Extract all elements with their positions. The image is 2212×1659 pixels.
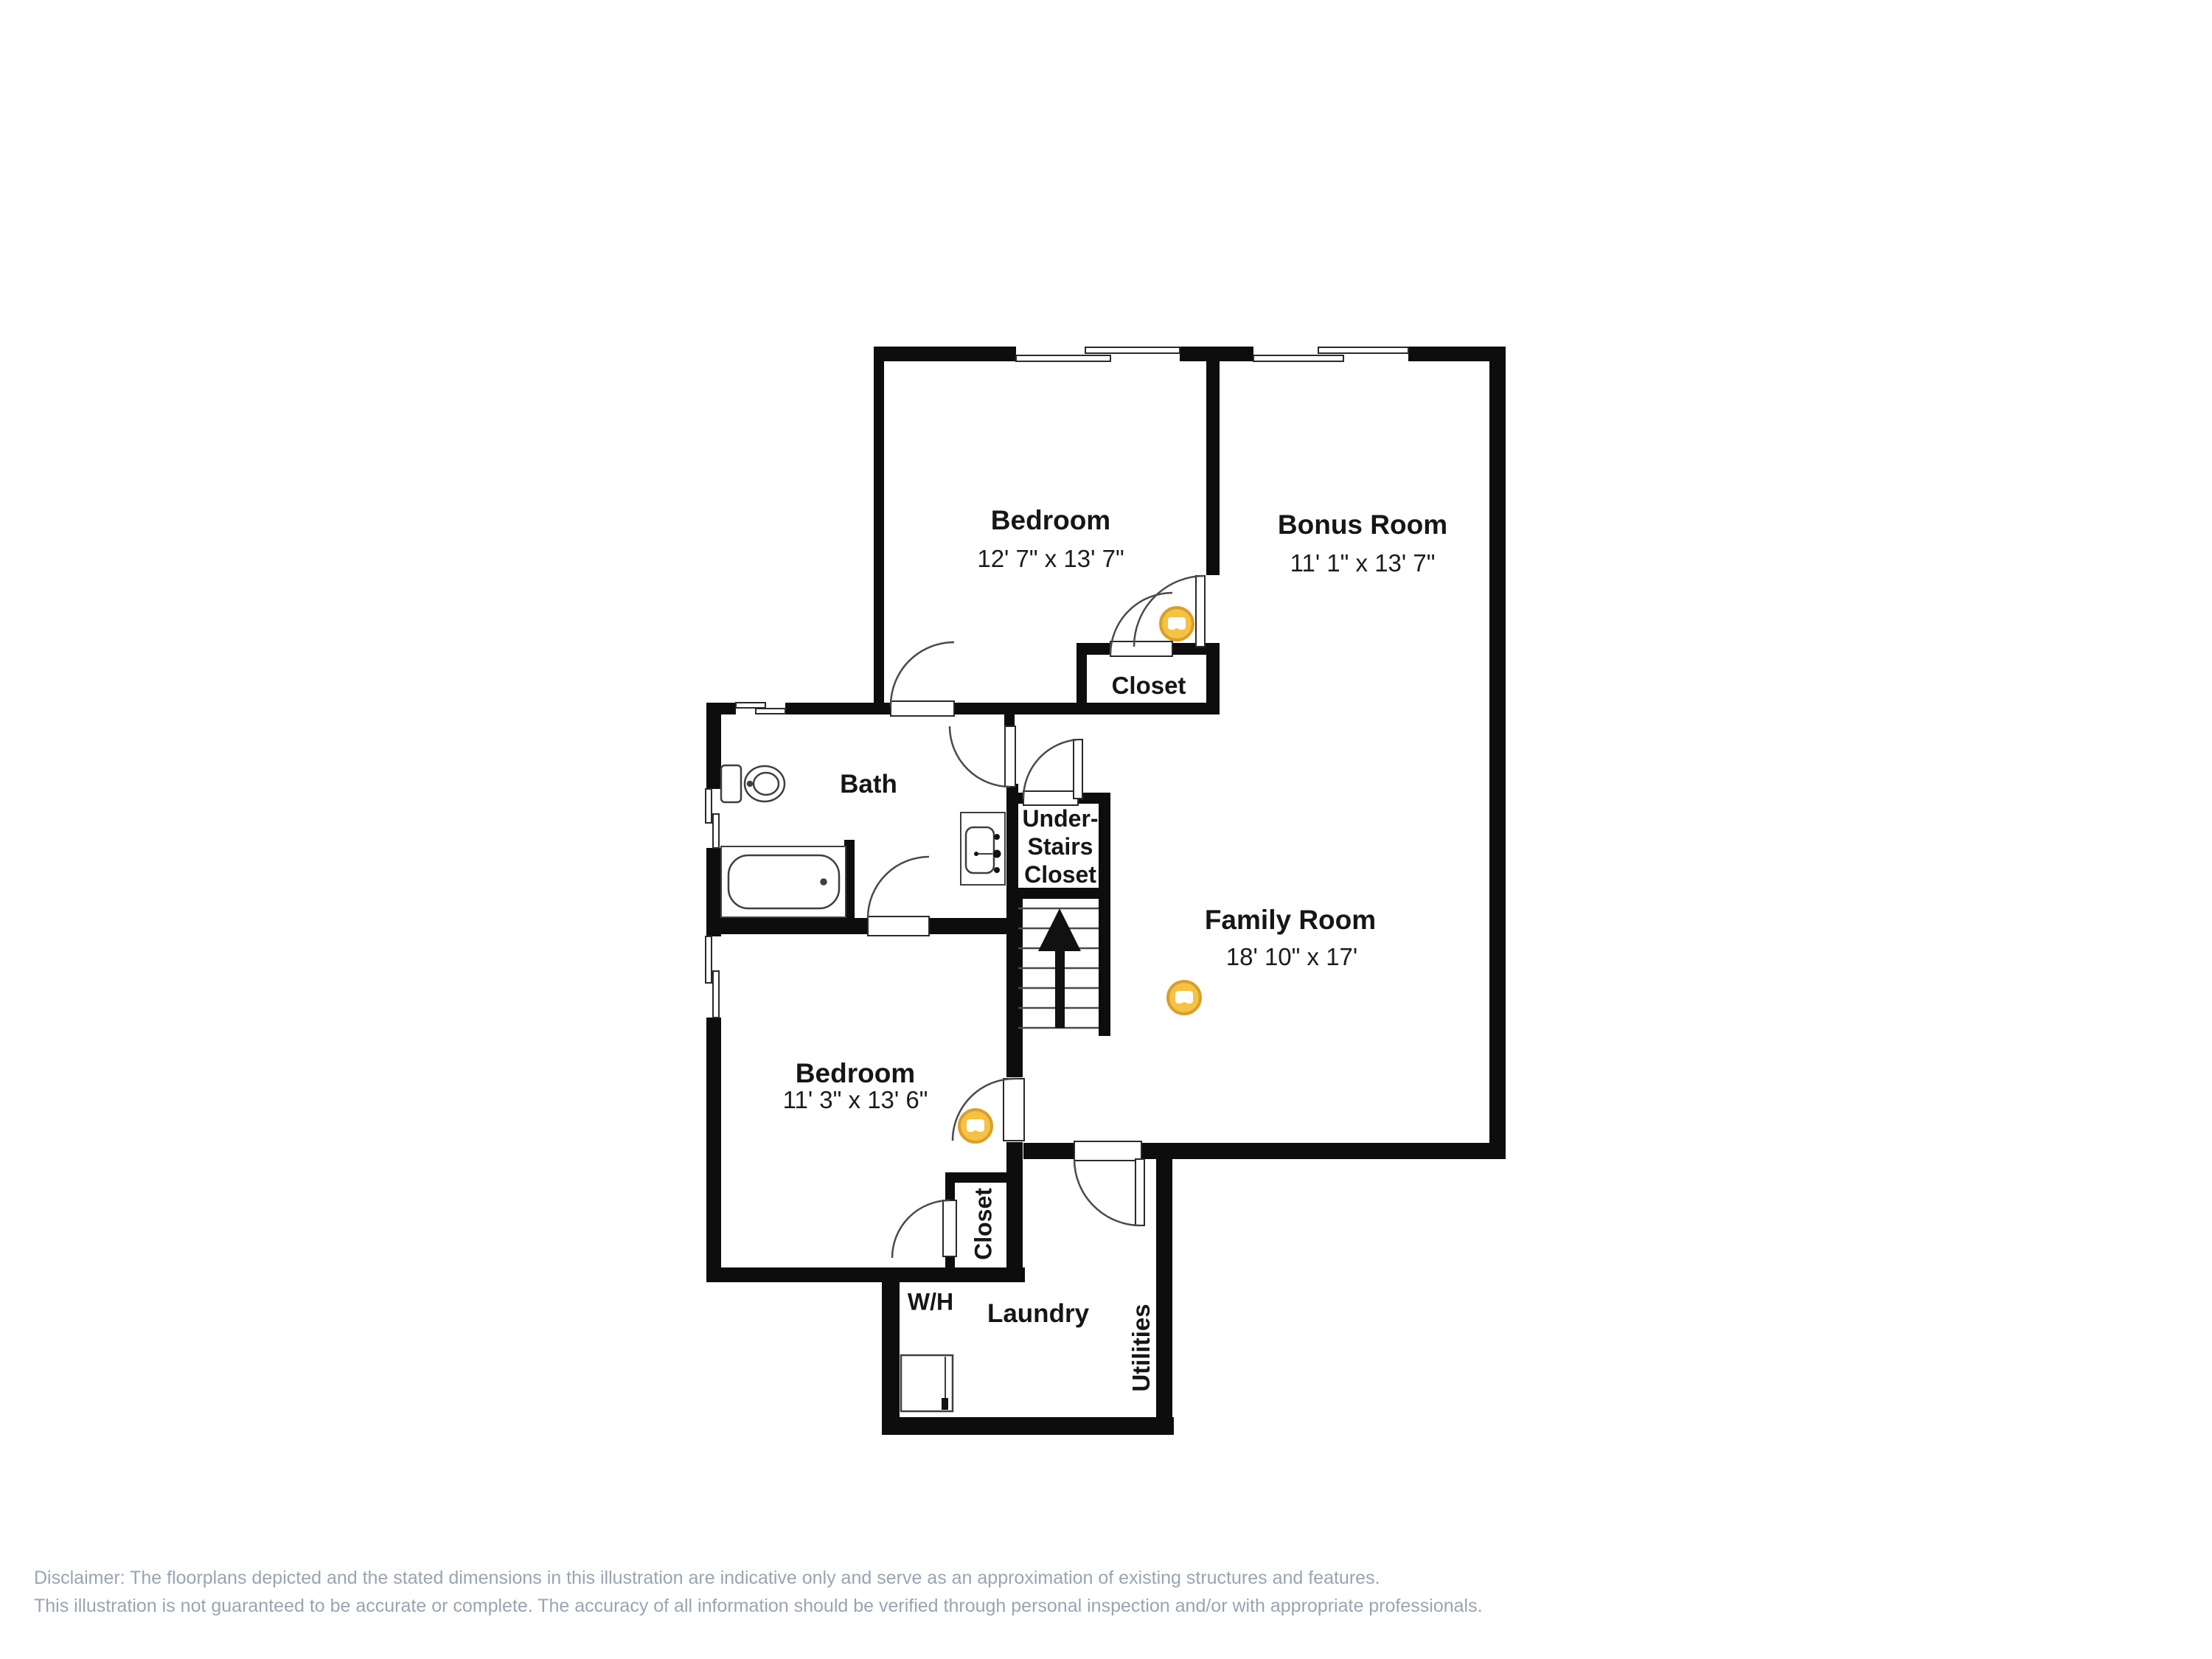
photo-marker-bedroom-top (1161, 608, 1193, 640)
room-label-closet-top: Closet (1112, 672, 1186, 700)
room-label-water-heater: W/H (908, 1289, 953, 1316)
room-dims-bedroom-top: 12' 7" x 13' 7" (977, 545, 1124, 573)
door-threshold-understairs (1023, 791, 1078, 805)
under-stairs-line-3: Closet (1022, 860, 1098, 888)
door-leaf-bath (1005, 726, 1015, 787)
room-label-utilities: Utilities (1127, 1304, 1155, 1391)
room-dims-family-room: 18' 10" x 17' (1226, 943, 1357, 971)
door-threshold-bedroom-top (891, 701, 954, 716)
wall-top (874, 347, 1506, 361)
door-threshold-laundry (1074, 1141, 1141, 1161)
wall-understairs-right (1099, 793, 1110, 1036)
door-threshold-bath-bedroom (868, 917, 929, 936)
wall-bath-bedroom2-divider (706, 918, 1006, 934)
wall-laundry-left (882, 1282, 900, 1435)
bathtub-icon (721, 846, 846, 917)
wall-laundry-right (1156, 1143, 1172, 1435)
disclaimer-line-1: Disclaimer: The floorplans depicted and … (34, 1568, 1380, 1589)
room-label-laundry: Laundry (987, 1299, 1089, 1329)
room-dims-bedroom-bottom: 11' 3" x 13' 6" (783, 1086, 928, 1114)
room-area-bonus-and-family (1220, 361, 1489, 1143)
room-label-bonus-room: Bonus Room (1278, 509, 1447, 540)
window-bath-top (736, 703, 785, 714)
wall-bedroom-bottom (706, 1267, 1025, 1282)
room-label-bedroom-bottom: Bedroom (796, 1058, 915, 1089)
door-threshold-bedroom-bottom (1004, 1079, 1024, 1141)
wall-divider-lower (1206, 647, 1220, 714)
room-label-bath: Bath (840, 770, 897, 799)
stairs (1018, 908, 1099, 1028)
wall-understairs-bottom (1006, 888, 1110, 899)
under-stairs-line-1: Under- (1022, 804, 1098, 832)
window-bedroom2-left (705, 936, 723, 1018)
floorplan-drawing (0, 0, 2212, 1659)
room-label-under-stairs-closet: Under- Stairs Closet (1022, 804, 1098, 888)
door-leaf-laundry (1135, 1159, 1144, 1225)
under-stairs-line-2: Stairs (1022, 832, 1098, 860)
disclaimer-line-2: This illustration is not guaranteed to b… (34, 1596, 1483, 1617)
wall-divider-upper (1206, 347, 1220, 575)
room-dims-bonus-room: 11' 1" x 13' 7" (1290, 549, 1436, 577)
sink-icon (961, 813, 1005, 885)
door-leaf-bonus (1196, 576, 1205, 647)
room-label-closet-bottom: Closet (970, 1188, 998, 1260)
door-arc-understairs (1023, 740, 1078, 799)
toilet-icon (721, 765, 785, 802)
window-bonus-room (1253, 347, 1408, 361)
wall-bedroom-top-left (874, 347, 884, 712)
wall-bedroom2-right-lower (1006, 1142, 1023, 1282)
window-bedroom-top (1016, 347, 1180, 361)
room-label-family-room: Family Room (1205, 905, 1376, 936)
photo-marker-bedroom-bottom (959, 1110, 992, 1142)
door-threshold-closet-top (1110, 641, 1172, 656)
water-heater-icon (901, 1355, 953, 1411)
photo-marker-family-room (1168, 981, 1200, 1014)
door-threshold-closet-bottom (943, 1200, 956, 1256)
window-bath-left (705, 789, 723, 848)
wall-right (1489, 347, 1506, 1159)
wall-laundry-bottom (882, 1417, 1174, 1435)
wall-closet-left (1077, 643, 1087, 714)
room-label-bedroom-top: Bedroom (991, 505, 1110, 536)
floorplan-page: Bedroom 12' 7" x 13' 7" Bonus Room 11' 1… (0, 0, 2212, 1659)
door-leaf-understairs (1074, 740, 1082, 799)
